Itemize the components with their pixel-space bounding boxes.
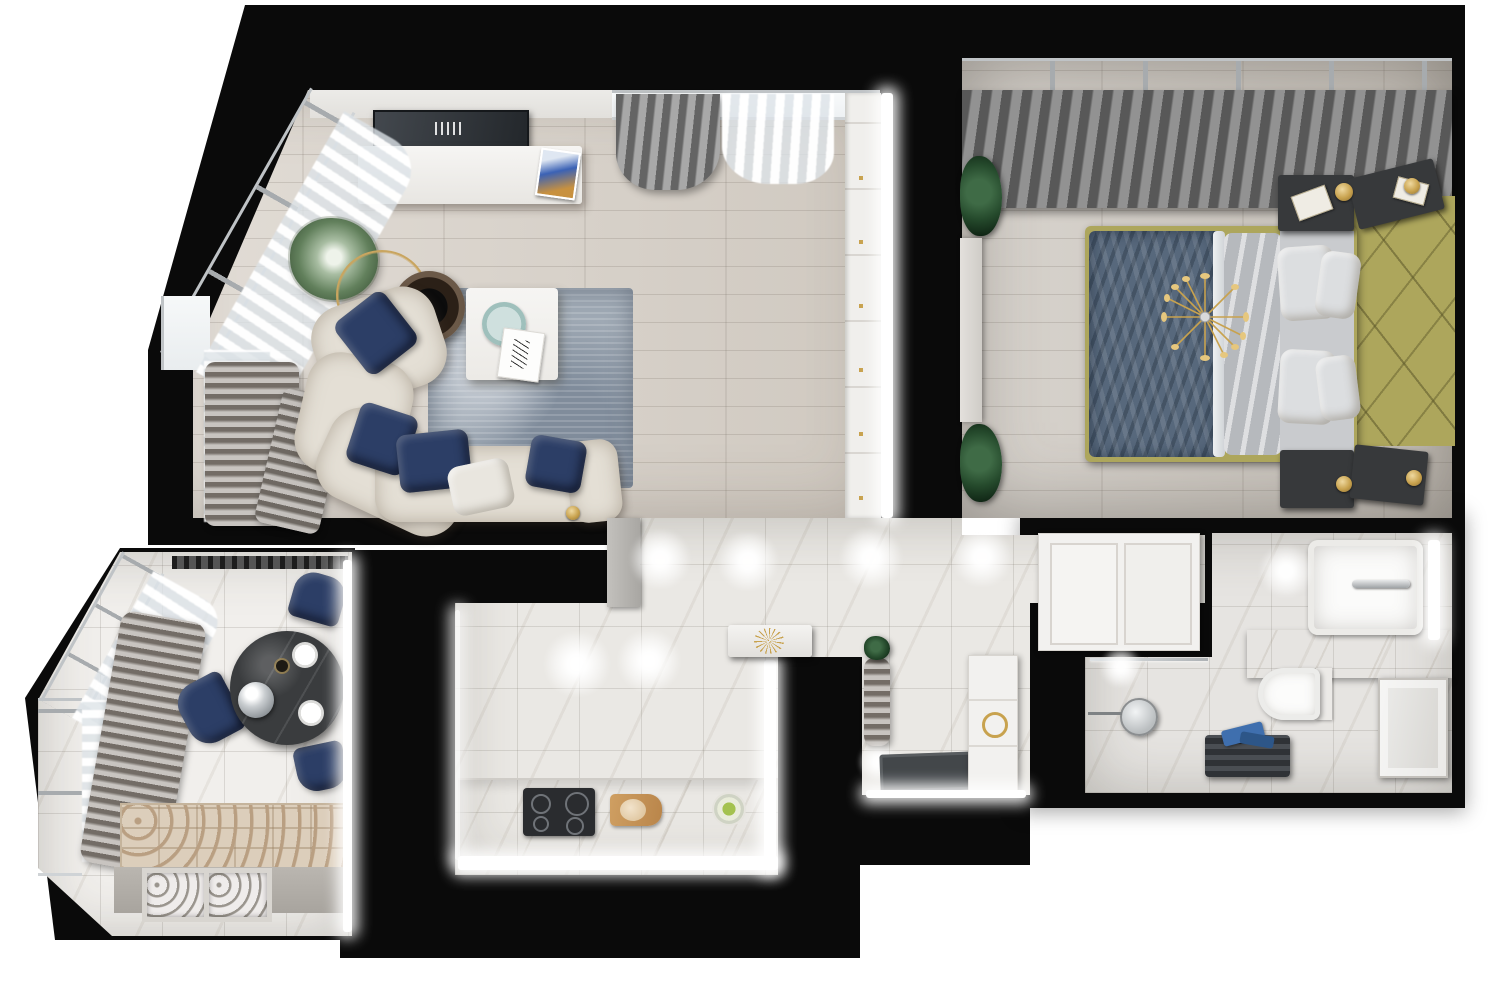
kitchen-led-left — [455, 610, 460, 860]
bedroom-headboard-wall — [1350, 196, 1455, 446]
corridor-spotlight-3 — [838, 528, 904, 588]
bathroom-spotlight — [1258, 545, 1314, 597]
hall-plant — [864, 636, 890, 660]
floor-plan-scene — [0, 0, 1500, 1000]
corridor-spotlight-2 — [716, 532, 780, 590]
sputnik-chandelier — [1158, 270, 1252, 364]
hall-bench — [864, 658, 890, 746]
radiator-grille-2 — [204, 868, 272, 922]
bed-pillow-4 — [1314, 354, 1362, 422]
navy-pillow-4 — [524, 434, 588, 495]
cooktop-burner-2 — [565, 792, 589, 816]
radiator-grille-1 — [142, 868, 210, 922]
entrance-led-strip — [866, 790, 1026, 798]
bedroom-plant-bottom — [960, 424, 1002, 502]
sofa-gold-foot — [566, 506, 580, 520]
bedroom-dresser — [960, 238, 982, 422]
round-cosmetic-mirror — [1120, 698, 1158, 736]
dining-led-right — [343, 560, 352, 932]
living-wardrobe-handles — [859, 120, 863, 500]
wardrobe-led-strip — [881, 93, 893, 518]
living-sheer-curtain-north — [722, 94, 834, 184]
kitchen-spotlight-2 — [616, 630, 682, 692]
magazine — [535, 147, 581, 200]
gold-sunburst-decor — [754, 628, 784, 654]
wine-decanter — [276, 660, 288, 672]
cooktop-burner-1 — [531, 794, 551, 814]
toilet — [1258, 668, 1320, 720]
shower-spotlight — [1098, 648, 1144, 686]
bread-loaf — [620, 799, 646, 821]
cooktop-burner-3 — [533, 816, 549, 832]
kitchen-led-right — [764, 660, 776, 870]
sconce-lamp-4 — [1406, 470, 1422, 486]
silver-cloche — [238, 682, 274, 718]
hall-doormat — [879, 751, 980, 792]
storage-panel-1 — [1050, 543, 1118, 645]
basin-led — [1428, 540, 1440, 640]
ornamental-tile-runner — [120, 803, 350, 869]
fruit-bowl — [714, 794, 744, 824]
bedroom-plant-top — [960, 156, 1002, 236]
bathroom-door-leaf — [1378, 678, 1448, 778]
storage-panel-2 — [1124, 543, 1192, 645]
basin-faucet — [1352, 580, 1410, 588]
sconce-lamp-2 — [1404, 178, 1420, 194]
dining-window-left — [38, 698, 82, 876]
corridor-spotlight-4 — [950, 528, 1014, 586]
tv-logo — [435, 122, 463, 135]
kitchen-spotlight-1 — [542, 632, 612, 696]
mirror-arm — [1088, 712, 1122, 715]
dining-curtain-rail — [172, 556, 348, 569]
living-wardrobe-panels — [845, 93, 881, 518]
sconce-lamp-1 — [1335, 183, 1353, 201]
plate-1 — [292, 642, 318, 668]
kitchen-led-bottom — [458, 856, 778, 870]
hall-wardrobe-knob — [982, 712, 1008, 738]
cooktop-burner-4 — [566, 817, 584, 835]
sconce-lamp-3 — [1336, 476, 1352, 492]
plate-2 — [298, 700, 324, 726]
living-gray-curtain — [616, 94, 720, 190]
corridor-spotlight-1 — [628, 530, 692, 588]
